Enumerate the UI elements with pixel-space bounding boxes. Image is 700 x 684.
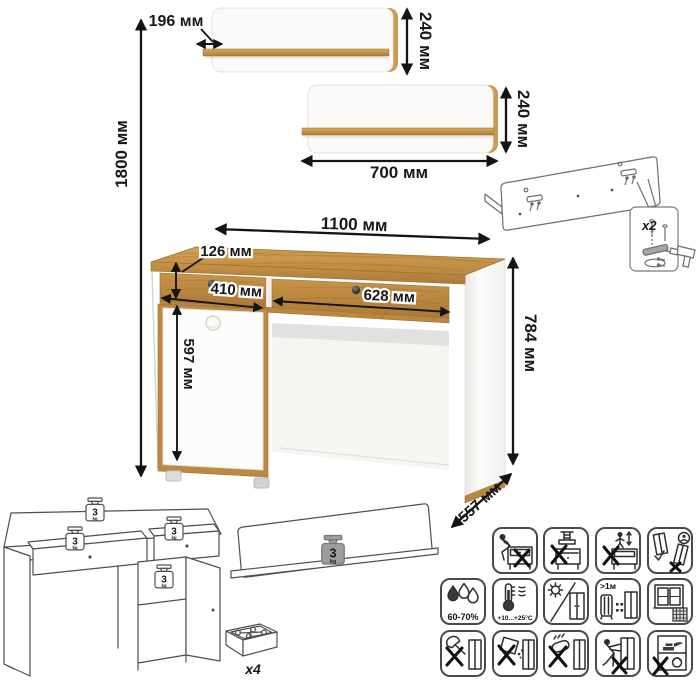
cabinet — [158, 304, 268, 477]
desk-foot — [254, 478, 269, 488]
feet-count-label: x4 — [244, 661, 261, 677]
label-overall-height: 1800 мм — [112, 120, 131, 188]
max-load-weight: 3 kg — [155, 565, 173, 588]
desk-load-diagram: 3 kg 3 kg 3 kg 3 kg — [4, 498, 221, 676]
icon-carry-upright — [647, 527, 693, 574]
large-wall-shelf-image — [302, 85, 498, 153]
icon-ventilate-room — [647, 578, 693, 625]
heat-distance-label: >1м — [600, 581, 616, 591]
icon-humidity: 60-70% — [440, 578, 486, 625]
open-drawer-right — [149, 524, 219, 562]
icon-no-liquids — [492, 630, 538, 677]
max-load-weight: 3 kg — [66, 527, 84, 550]
label-right-drawer-width: 628 мм — [363, 287, 415, 307]
icon-no-abrasives — [543, 630, 589, 677]
icon-avoid-direct-sunlight — [543, 578, 589, 625]
svg-text:kg: kg — [161, 583, 166, 588]
desk-image — [151, 247, 505, 503]
icon-temperature-range: +10...+25°C — [492, 578, 538, 625]
svg-text:kg: kg — [171, 535, 176, 540]
label-drawer-height: 126 мм — [200, 243, 251, 260]
icon-do-not-drag — [595, 630, 641, 677]
svg-text:kg: kg — [330, 559, 336, 565]
diagram-canvas: x2 — [0, 0, 700, 684]
max-load-weight: 3 kg — [165, 517, 183, 540]
temperature-label: +10...+25°C — [494, 615, 536, 622]
furniture-dimension-diagram: x2 — [0, 0, 700, 684]
label-door-height: 597 мм — [180, 338, 197, 389]
label-shelf-large-height: 240 мм — [514, 90, 533, 148]
svg-text:kg: kg — [92, 516, 97, 521]
humidity-label: 60-70% — [442, 612, 484, 622]
feet-pack-drawing: x4 — [226, 624, 277, 677]
label-shelf-depth: 196 мм — [149, 13, 204, 30]
label-left-drawer-width: 410 мм — [210, 280, 262, 301]
bracket-count-label: x2 — [641, 218, 657, 233]
shelf-load-diagram: 3 kg — [231, 504, 438, 578]
label-shelf-width: 700 мм — [370, 163, 428, 182]
max-load-weight-gray: 3 kg — [322, 536, 345, 565]
label-desk-width: 1100 мм — [320, 214, 387, 235]
icon-keep-1m-from-heat: >1м — [595, 578, 641, 625]
icon-do-not-press — [543, 527, 589, 574]
svg-text:kg: kg — [72, 545, 77, 550]
label-shelf-small-height: 240 мм — [416, 12, 435, 70]
wall-mount-detail-drawing: x2 — [485, 157, 695, 271]
max-load-weight: 3 kg — [86, 498, 104, 521]
drawer-knob — [352, 286, 360, 294]
icon-no-sharp-tools — [440, 630, 486, 677]
small-wall-shelf-image — [203, 8, 398, 72]
door-knob — [206, 316, 220, 330]
label-desk-height: 784 мм — [521, 314, 540, 372]
icon-do-not-sit — [492, 527, 538, 574]
icon-do-not-climb — [595, 527, 641, 574]
desk-foot — [166, 471, 181, 481]
icon-do-not-overload — [647, 630, 693, 677]
